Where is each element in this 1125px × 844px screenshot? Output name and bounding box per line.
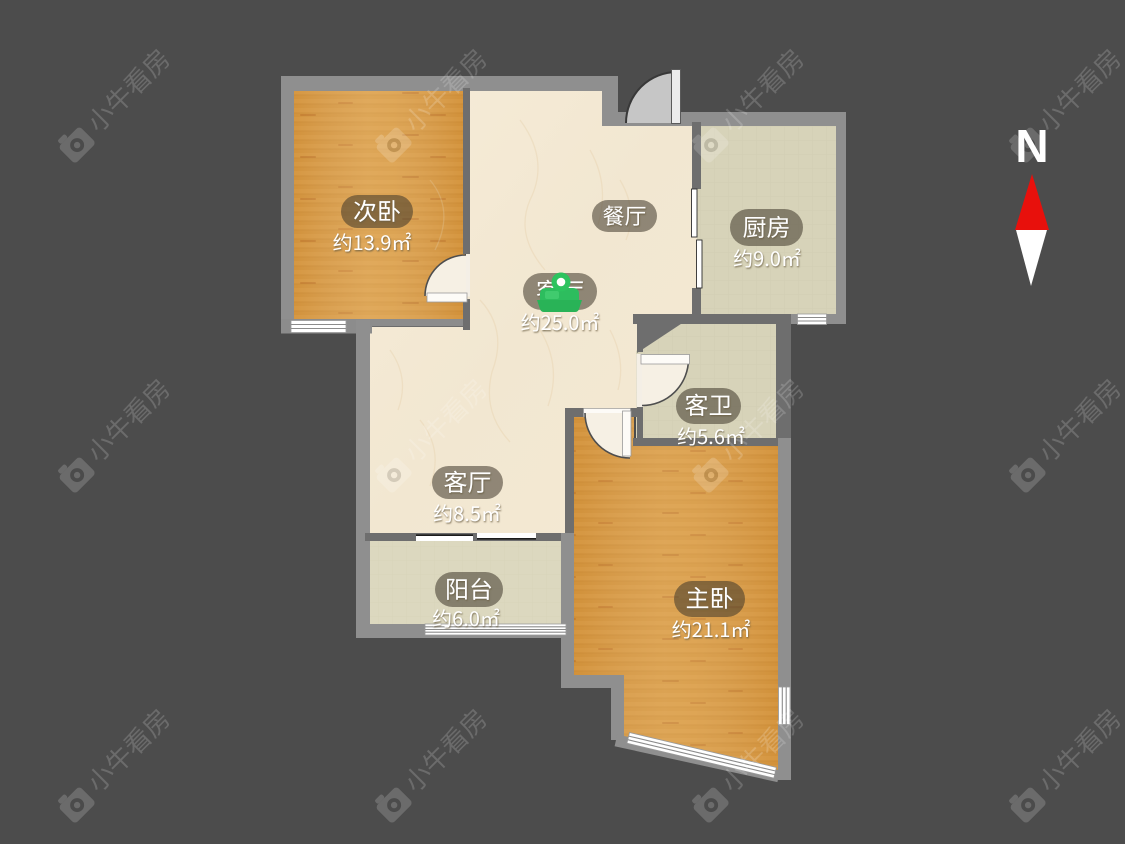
svg-text:N: N (1015, 120, 1048, 172)
